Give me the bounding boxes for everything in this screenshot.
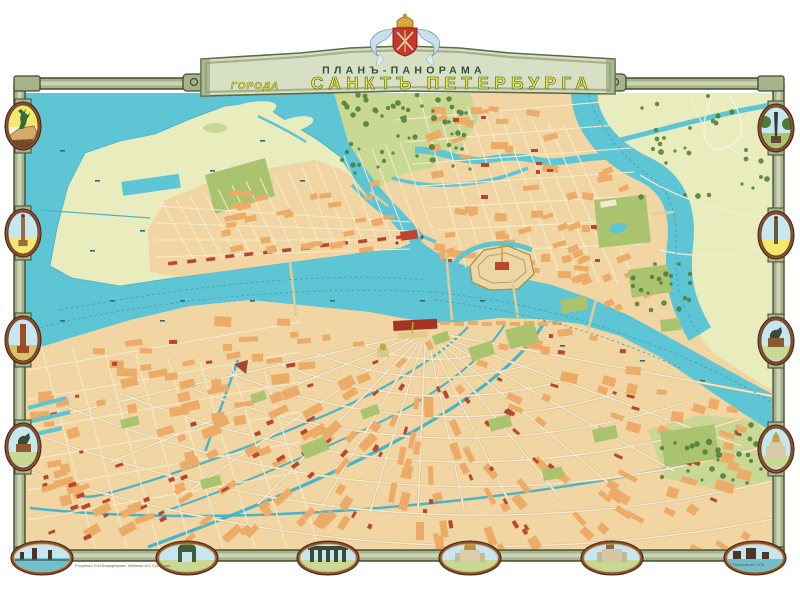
svg-text:Рисунокъ Н.И.Анциферова. Издан: Рисунокъ Н.И.Анциферова. Издание А.С.Сув… (75, 563, 171, 568)
svg-text:ГОРОДА: ГОРОДА (231, 81, 280, 92)
svg-text:САНКТЪ ПЕТЕРБУРГА: САНКТЪ ПЕТЕРБУРГА (311, 73, 593, 93)
svg-text:И.Г.Герасимовъ СПБ: И.Г.Герасимовъ СПБ (726, 562, 765, 567)
